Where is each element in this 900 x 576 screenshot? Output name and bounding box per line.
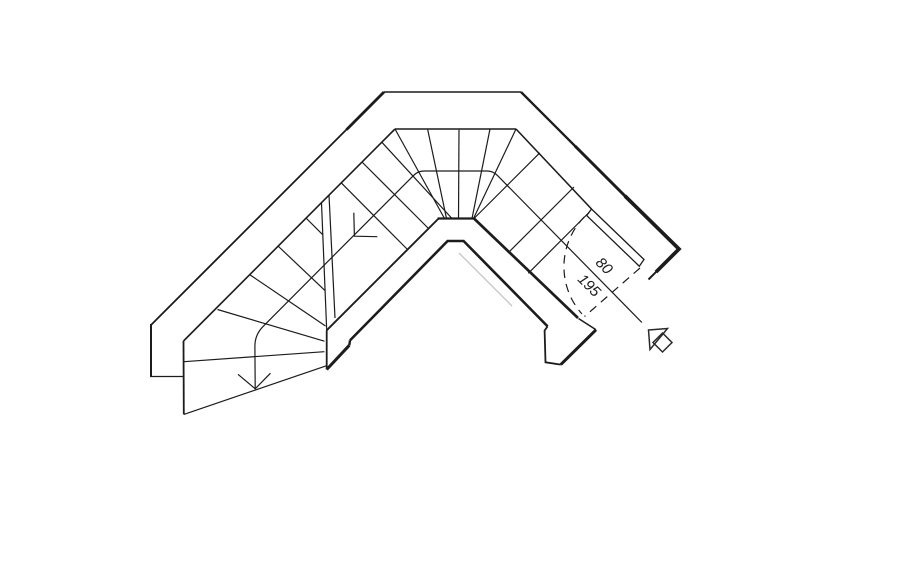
svg-text:195: 195 xyxy=(574,271,604,301)
